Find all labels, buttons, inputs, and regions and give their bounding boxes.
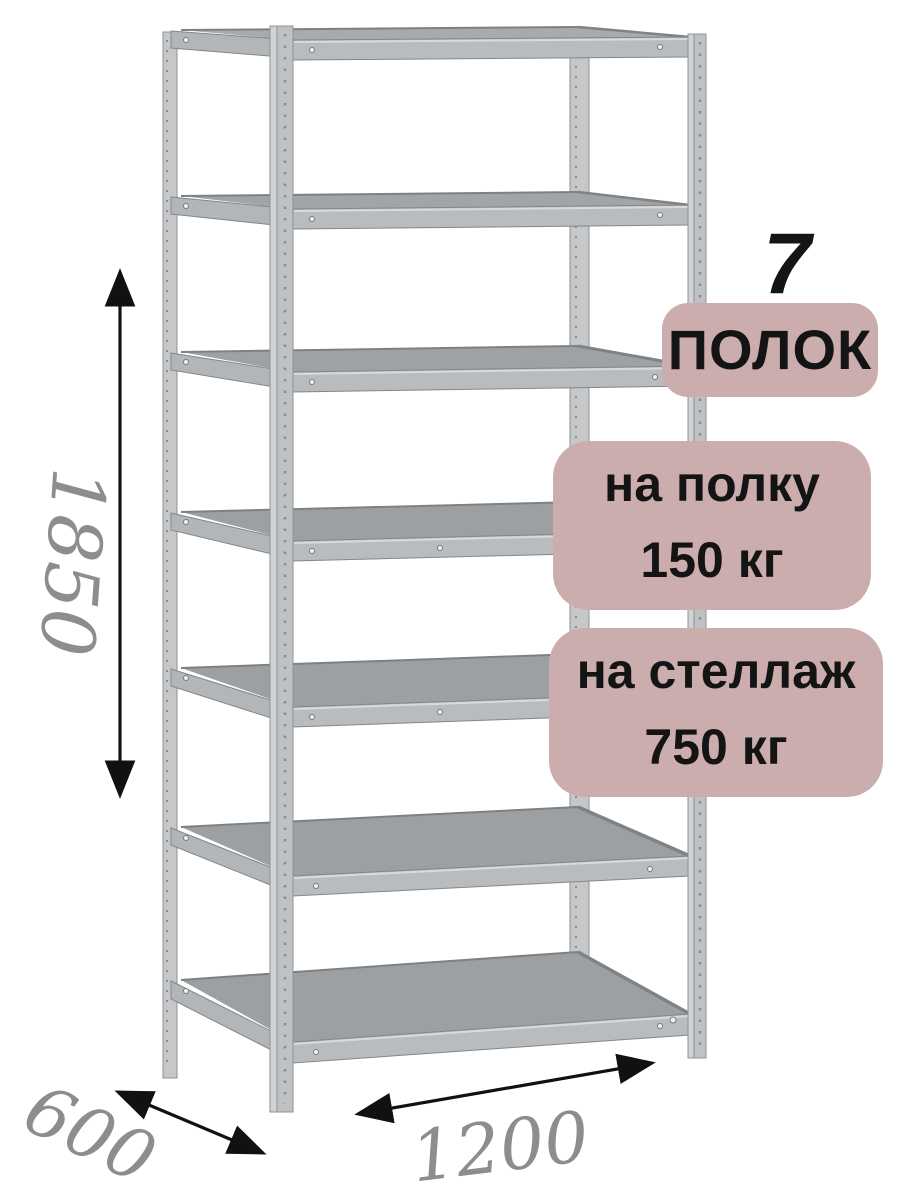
per-rack-load-value: 750 кг <box>549 709 883 785</box>
height-dimension-label: 1850 <box>23 465 122 659</box>
per-shelf-load-value: 150 кг <box>553 522 871 598</box>
shelf-7 <box>171 952 690 1063</box>
shelf-count-number: 7 <box>742 218 832 310</box>
per-shelf-load-badge: на полку 150 кг <box>553 441 871 610</box>
shelf-2 <box>171 192 690 229</box>
shelf-3 <box>171 346 690 392</box>
rear-left-post <box>163 32 177 1078</box>
product-image: 7 ПОЛОК на полку 150 кг на стеллаж 750 к… <box>0 0 900 1200</box>
per-shelf-load-text: на полку <box>553 446 871 522</box>
per-rack-load-badge: на стеллаж 750 кг <box>549 628 883 797</box>
shelf-count-badge: ПОЛОК <box>662 303 878 397</box>
front-left-post <box>270 26 293 1112</box>
shelf-1 <box>171 27 690 60</box>
shelf-count-label: ПОЛОК <box>668 318 872 381</box>
per-rack-load-text: на стеллаж <box>549 633 883 709</box>
shelf-6 <box>171 807 703 896</box>
